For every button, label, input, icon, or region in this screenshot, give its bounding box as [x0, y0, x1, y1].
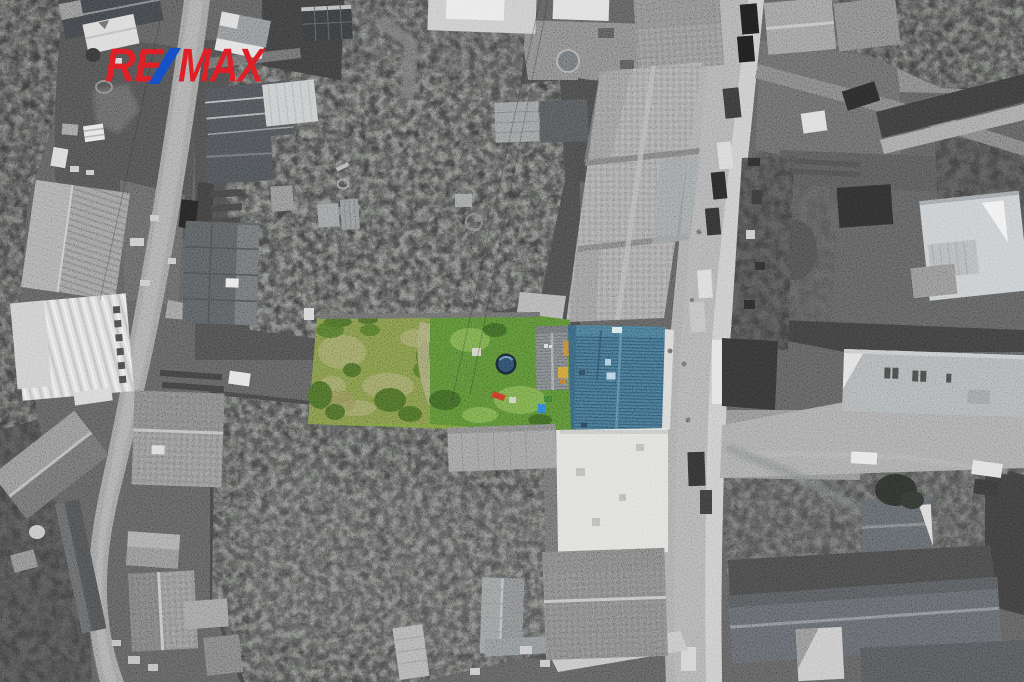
svg-text:MAX: MAX [178, 39, 266, 92]
